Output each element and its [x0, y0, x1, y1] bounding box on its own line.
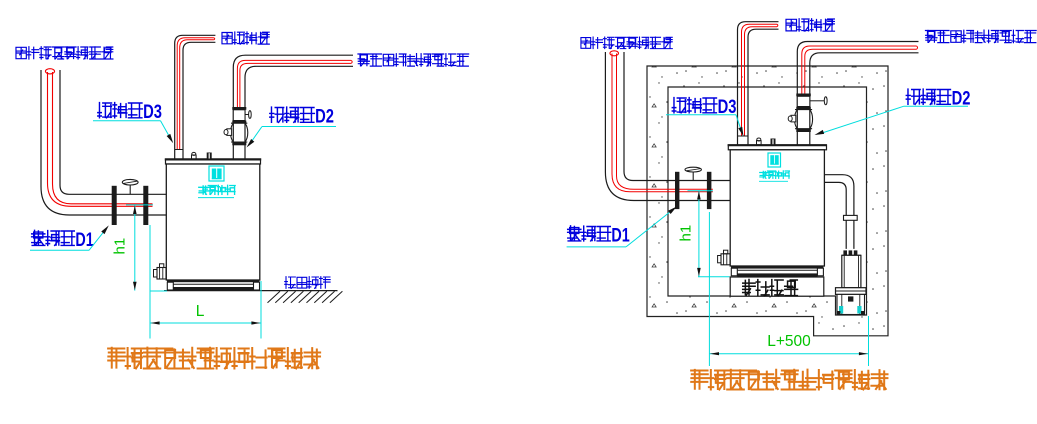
svg-text:D1: D1	[611, 225, 629, 246]
svg-text:h1: h1	[112, 238, 129, 255]
svg-text:L: L	[196, 303, 205, 320]
svg-text:D2: D2	[315, 106, 334, 128]
svg-text:L+500: L+500	[767, 333, 811, 350]
svg-text:h1: h1	[678, 225, 695, 242]
svg-text:D3: D3	[143, 101, 162, 123]
